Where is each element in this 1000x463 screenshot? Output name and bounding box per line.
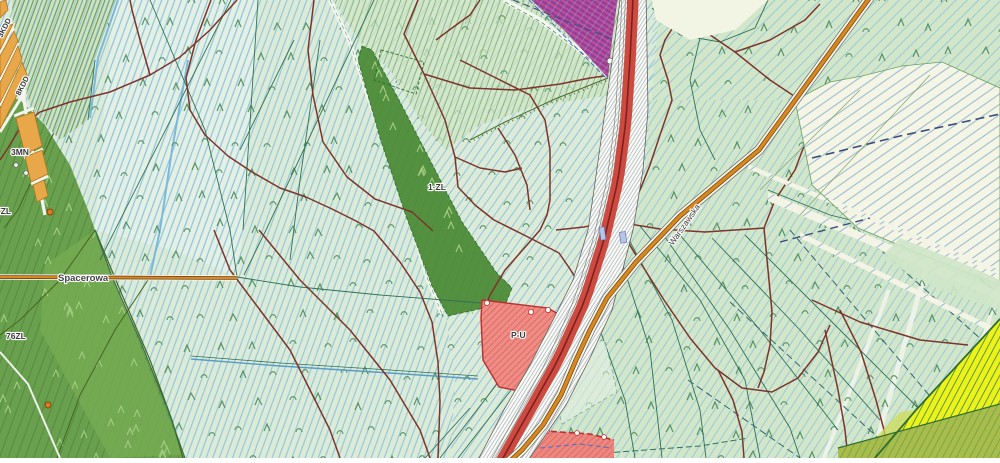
svg-text:3MN: 3MN [11,147,29,157]
svg-text:P-U: P-U [511,330,526,340]
svg-text:7ZL: 7ZL [0,206,11,216]
svg-text:1·ZL: 1·ZL [428,182,446,192]
svg-text:76ZL: 76ZL [6,331,26,341]
svg-text:Spacerowa: Spacerowa [58,273,109,284]
